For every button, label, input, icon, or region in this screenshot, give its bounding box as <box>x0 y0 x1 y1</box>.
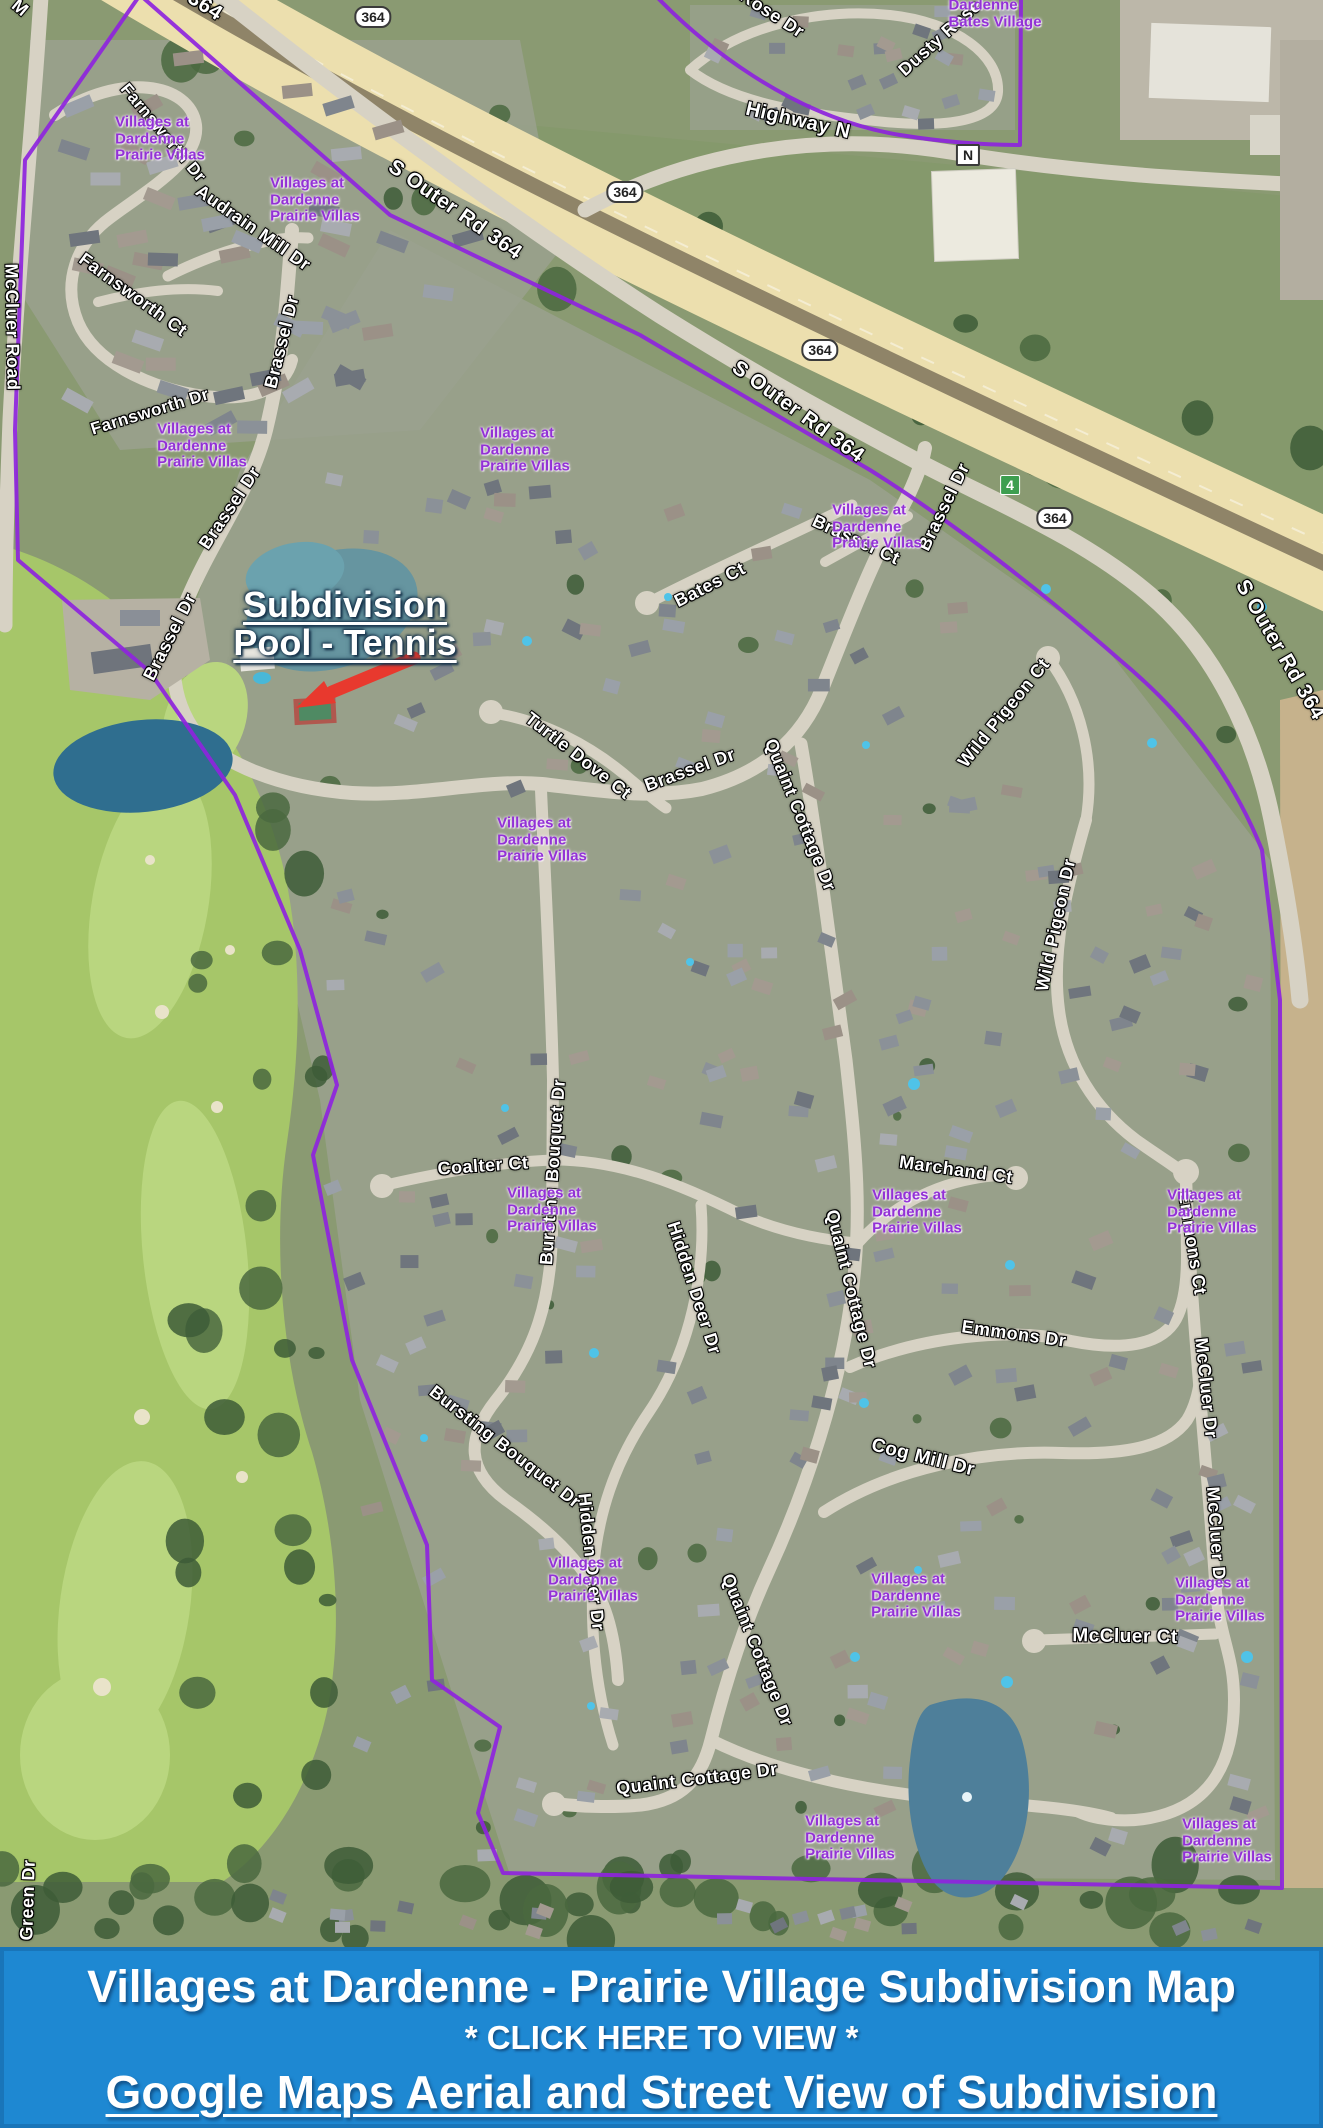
pond-fountain <box>962 1792 972 1802</box>
footer-banner[interactable]: Villages at Dardenne - Prairie Village S… <box>0 1947 1323 2128</box>
footer-click-to-view[interactable]: * CLICK HERE TO VIEW * <box>0 2019 1323 2057</box>
footer-google-maps-link[interactable]: Google Maps Aerial and Street View of Su… <box>0 2065 1323 2119</box>
footer-title: Villages at Dardenne - Prairie Village S… <box>0 1961 1323 2013</box>
aerial-imagery <box>0 0 1323 1947</box>
aerial-map[interactable]: Subdivision Pool - Tennis S Outer Rd 364… <box>0 0 1323 1947</box>
subdivision-map-page: Subdivision Pool - Tennis S Outer Rd 364… <box>0 0 1323 2128</box>
